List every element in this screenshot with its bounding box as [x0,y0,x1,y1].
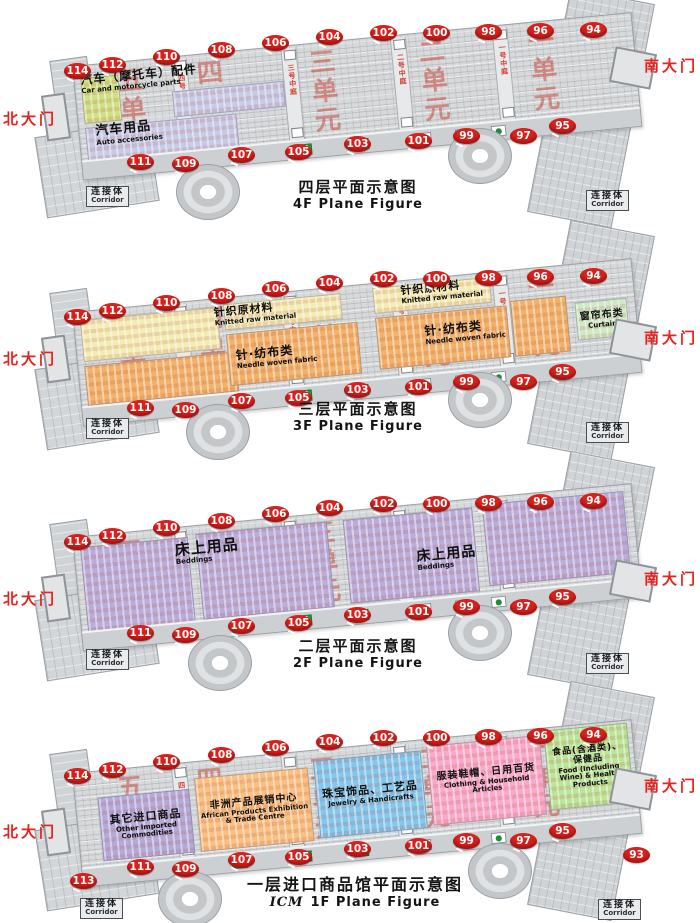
floor-title-en: 3F Plane Figure [248,419,468,434]
floor-title-3f: 三层平面示意图 3F Plane Figure [248,398,468,434]
gate-100-badge: 100 [423,496,450,512]
gate-105-badge: 105 [285,615,312,631]
floor-title-zh: 三层平面示意图 [248,398,468,419]
south-gate-label: 南大门 [644,55,698,76]
corridor-en: Corridor [591,433,624,440]
product-area-label: 珠宝饰品、工艺品Jewelry & Handicrafts [319,779,422,809]
floor-title-2f: 二层平面示意图 2F Plane Figure [248,635,468,671]
gate-103-badge: 103 [344,607,371,623]
gate-101-badge: 101 [405,838,432,854]
gate-108-badge: 108 [208,288,235,304]
product-area: 珠宝饰品、工艺品Jewelry & Handicrafts [313,750,428,838]
unit-label: 三单元 [305,47,339,136]
gate-114-badge: 114 [64,534,91,550]
gate-96-badge: 96 [527,494,554,510]
gate-95-badge: 95 [549,118,576,134]
gate-107-badge: 107 [228,147,255,163]
corridor-label-left: 连接体 Corridor [80,898,123,919]
corridor-en: Corridor [91,429,124,436]
gate-96-badge: 96 [527,23,554,39]
gate-103-badge: 103 [344,841,371,857]
gate-100-badge: 100 [423,25,450,41]
gate-102-badge: 102 [370,496,397,512]
gate-101-badge: 101 [405,604,432,620]
gate-95-badge: 95 [549,589,576,605]
spiral-ramp-left [188,635,252,691]
gate-100-badge: 100 [423,730,450,746]
gate-95-badge: 95 [549,364,576,380]
gate-108-badge: 108 [208,747,235,763]
gate-111-badge: 111 [127,625,154,641]
floor-title-1f: 一层进口商品馆平面示意图 ICM1F Plane Figure [205,871,505,910]
atrium-strip: 二号中庭 [390,37,415,130]
south-gate-label: 南大门 [644,775,698,796]
gate-94-badge: 94 [580,493,607,509]
gate-98-badge: 98 [475,270,502,286]
corridor-label-left: 连接体 Corridor [86,186,129,207]
product-area-label: 其它进口商品Other Imported Commodities [102,807,190,843]
corridor-label-right: 连接体 Corridor [598,899,641,920]
product-area [482,491,631,586]
gate-107-badge: 107 [228,618,255,634]
floor-title-en: ICM1F Plane Figure [205,895,505,910]
product-area-label: 非洲产品展销中心African Products Exhibition & Tr… [199,791,309,828]
gate-109-badge: 109 [172,627,199,643]
product-area: 其它进口商品Other Imported Commodities [97,789,195,862]
floor-title-zh: 四层平面示意图 [248,176,468,197]
gate-112-badge: 112 [99,762,126,778]
gate-106-badge: 106 [262,740,289,756]
gate-110-badge: 110 [153,295,180,311]
gate-94-badge: 94 [580,727,607,743]
gate-108-badge: 108 [208,513,235,529]
gate-114-badge: 114 [64,63,91,79]
product-area: 非洲产品展销中心African Products Exhibition & Tr… [194,767,315,852]
floor-title-zh: 一层进口商品馆平面示意图 [205,871,505,895]
gate-97-badge: 97 [510,128,537,144]
gate-97-badge: 97 [510,833,537,849]
gate-101-badge: 101 [405,133,432,149]
gate-93-badge: 93 [623,847,650,863]
corridor-label-right: 连接体 Corridor [586,653,629,674]
gate-98-badge: 98 [475,729,502,745]
unit-label: 二单元 [415,37,449,126]
gate-112-badge: 112 [99,528,126,544]
floor-title-4f: 四层平面示意图 4F Plane Figure [248,176,468,212]
gate-101-badge: 101 [405,379,432,395]
corridor-en: Corridor [91,197,124,204]
floor-plan-1f: 北大门 五单元四单元三单元二单元一单元 四号中庭三号中庭二号中庭一号中庭 其它进… [0,693,700,923]
gate-100-badge: 100 [423,271,450,287]
atrium-label: 二号中庭 [396,53,406,86]
gate-99-badge: 99 [453,599,480,615]
gate-111-badge: 111 [127,154,154,170]
floor-title-en: 4F Plane Figure [248,197,468,212]
product-area: 服装鞋帽、日用百货Clothing & Household Articles [426,735,547,826]
gate-103-badge: 103 [344,382,371,398]
floor-title-en: 2F Plane Figure [248,656,468,671]
atrium-label: 三号中庭 [287,64,297,97]
floor-plan-3f: 北大门 五单元四单元三单元二单元一单元 四号中庭三号中庭二号中庭一号中庭 针织原… [0,232,700,462]
corridor-label-left: 连接体 Corridor [86,649,129,670]
gate-97-badge: 97 [510,374,537,390]
north-gate-label: 北大门 [3,588,57,609]
gate-114-badge: 114 [64,309,91,325]
south-gate-label: 南大门 [644,568,698,589]
gate-111-badge: 111 [127,859,154,875]
corridor-label-right: 连接体 Corridor [586,422,629,443]
gate-103-badge: 103 [344,136,371,152]
gate-106-badge: 106 [262,506,289,522]
gate-110-badge: 110 [153,520,180,536]
gate-104-badge: 104 [316,500,343,516]
gate-99-badge: 99 [453,374,480,390]
gate-104-badge: 104 [316,29,343,45]
atrium-label: 一号中庭 [498,43,508,76]
floor-plan-2f: 北大门 五单元四单元三单元二单元一单元 四号中庭三号中庭二号中庭一号中庭 床上用… [0,463,700,693]
gate-111-badge: 111 [127,400,154,416]
gate-110-badge: 110 [153,49,180,65]
gate-94-badge: 94 [580,22,607,38]
gate-97-badge: 97 [510,599,537,615]
floor-title-zh: 二层平面示意图 [248,635,468,656]
corridor-en: Corridor [591,664,624,671]
gate-114-badge: 114 [64,768,91,784]
corridor-en: Corridor [591,201,624,208]
gate-102-badge: 102 [370,730,397,746]
gate-96-badge: 96 [527,728,554,744]
gate-102-badge: 102 [370,271,397,287]
corridor-en: Corridor [85,909,118,916]
floor-plan-sheet: 北大门 五单元四单元三单元二单元一单元 四号中庭三号中庭二号中庭一号中庭 汽车（… [0,0,700,923]
gate-108-badge: 108 [208,42,235,58]
gate-112-badge: 112 [99,303,126,319]
gate-98-badge: 98 [475,495,502,511]
icm-prefix: ICM [270,895,304,910]
gate-99-badge: 99 [453,833,480,849]
corridor-en: Corridor [603,910,636,917]
gate-110-badge: 110 [153,754,180,770]
gate-112-badge: 112 [99,57,126,73]
gate-99-badge: 99 [453,128,480,144]
gate-95-badge: 95 [549,823,576,839]
floor-plan-4f: 北大门 五单元四单元三单元二单元一单元 四号中庭三号中庭二号中庭一号中庭 汽车（… [0,0,700,230]
corridor-label-left: 连接体 Corridor [86,418,129,439]
gate-105-badge: 105 [285,849,312,865]
gate-113-badge: 113 [70,873,97,889]
gate-104-badge: 104 [316,275,343,291]
product-area-label: 服装鞋帽、日用百货Clothing & Household Articles [432,762,542,799]
gate-105-badge: 105 [285,144,312,160]
gate-104-badge: 104 [316,734,343,750]
gate-102-badge: 102 [370,25,397,41]
south-gate-label: 南大门 [644,327,698,348]
corridor-label-right: 连接体 Corridor [586,190,629,211]
corridor-en: Corridor [91,660,124,667]
gate-94-badge: 94 [580,268,607,284]
atrium-strip: 一号中庭 [491,27,516,120]
gate-106-badge: 106 [262,35,289,51]
bank-logo-green-icon: ● [491,596,507,608]
north-gate-label: 北大门 [3,821,57,842]
north-gate-label: 北大门 [3,348,57,369]
gate-106-badge: 106 [262,281,289,297]
north-gate-label: 北大门 [3,108,57,129]
gate-98-badge: 98 [475,24,502,40]
gate-109-badge: 109 [172,861,199,877]
gate-96-badge: 96 [527,269,554,285]
gate-107-badge: 107 [228,852,255,868]
gate-109-badge: 109 [172,156,199,172]
gate-109-badge: 109 [172,402,199,418]
spiral-ramp-left [176,164,240,220]
